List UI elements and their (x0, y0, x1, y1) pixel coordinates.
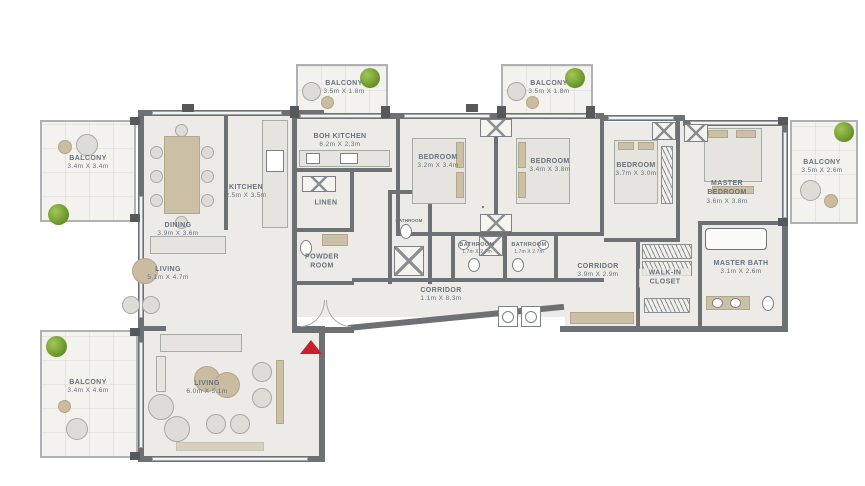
partition (297, 168, 392, 172)
room-dims: 3.5m X 1.8m (528, 88, 569, 97)
dining-chair (252, 388, 272, 408)
plant-icon (46, 336, 67, 357)
window (152, 457, 308, 461)
window (139, 342, 143, 448)
ottoman (206, 414, 226, 434)
wall (292, 327, 354, 333)
column (130, 452, 140, 460)
window (502, 114, 596, 118)
room-name: BATHROOM (459, 242, 494, 249)
linen-shelf (302, 176, 336, 192)
partition (297, 281, 354, 285)
ac-unit (652, 122, 676, 140)
dryer-drum (525, 311, 537, 323)
room-dims: 6.2m X 2.3m (313, 141, 366, 150)
bathtub (705, 228, 767, 250)
room-dims: 5.1m X 4.7m (147, 274, 188, 283)
entrance-arrow-icon (300, 340, 322, 354)
window (404, 114, 490, 118)
boh-sink (306, 153, 320, 164)
partition (350, 168, 354, 232)
room-label-kitchen: KITCHEN 2.5m X 3.5m (225, 183, 266, 201)
room-name: KITCHEN (225, 183, 266, 192)
room-dims: 1.7m X 2.7m (511, 249, 546, 256)
room-name: BEDROOM (615, 161, 656, 170)
room-dims: 3.4m X 4.6m (67, 387, 108, 396)
room-label-living-lower: LIVING 6.0m X 5.1m (186, 379, 227, 397)
column (586, 106, 595, 118)
room-dims: 3.6m X 3.8m (694, 198, 760, 207)
balcony-table (824, 194, 838, 208)
balcony-table (321, 96, 334, 109)
sink (712, 298, 723, 308)
tv-console (276, 360, 284, 424)
pillow (736, 130, 756, 138)
dining-chair (150, 170, 163, 183)
room-label-linen: LINEN (315, 198, 338, 207)
room-name: CORRIDOR (577, 262, 618, 271)
shaft (482, 206, 484, 208)
ottoman (142, 296, 160, 314)
room-dims: 1.1m X 8.3m (420, 295, 461, 304)
room-dims: 3.4m X 3.4m (67, 163, 108, 172)
washer-drum (502, 311, 514, 323)
room-label-balcony-top-2: BALCONY 3.5m X 1.8m (528, 79, 569, 97)
dining-table (164, 136, 200, 214)
balcony-chair (800, 180, 821, 201)
balcony-chair (66, 418, 88, 440)
lounge-chair (148, 394, 174, 420)
wall (560, 326, 788, 332)
pillow (456, 172, 464, 198)
room-label-bedroom-2: BEDROOM 3.4m X 3.8m (529, 157, 570, 175)
balcony-chair (302, 82, 321, 101)
kitchen-counter (262, 120, 288, 228)
room-label-boh-kitchen: BOH KITCHEN 6.2m X 2.3m (313, 132, 366, 150)
room-dims: 3.2m X 3.4m (417, 162, 458, 171)
room-label-corridor-2: CORRIDOR 3.9m X 2.9m (577, 262, 618, 280)
ac-unit (480, 119, 512, 137)
column (778, 218, 788, 226)
column (130, 117, 140, 125)
partition (388, 190, 392, 284)
balcony-table (58, 400, 71, 413)
partition (676, 120, 680, 242)
room-label-master-bath: MASTER BATH 3.1m X 2.6m (714, 259, 769, 277)
room-name: BEDROOM (417, 153, 458, 162)
closet-shelf (642, 244, 692, 259)
column (381, 106, 390, 118)
wall (138, 326, 166, 331)
room-dims: 3.9m X 2.9m (577, 271, 618, 280)
pillow (708, 130, 728, 138)
lounge-chair (164, 416, 190, 442)
partition (224, 116, 228, 230)
dining-chair (150, 146, 163, 159)
room-dims: 3.5m X 1.8m (323, 88, 364, 97)
pillow (638, 142, 654, 150)
wardrobe (661, 146, 673, 204)
column (130, 214, 140, 222)
room-label-bedroom-1: BEDROOM 3.2m X 3.4m (417, 153, 458, 171)
sink (730, 298, 741, 308)
toilet (512, 258, 524, 272)
room-name: LINEN (315, 198, 338, 207)
corridor-bench (570, 312, 634, 324)
shaft (394, 246, 424, 276)
partition (352, 278, 604, 282)
dining-chair (175, 124, 188, 137)
pillow (518, 142, 526, 168)
room-dims: 1.7m X 2.7m (459, 249, 494, 256)
room-label-corridor-1: CORRIDOR 1.1m X 8.3m (420, 286, 461, 304)
sofa (160, 334, 242, 352)
dining-chair (201, 194, 214, 207)
room-label-bedroom-3: BEDROOM 3.7m X 3.0m (615, 161, 656, 179)
column (182, 104, 194, 112)
window (300, 114, 384, 118)
room-name: BALCONY (801, 158, 842, 167)
partition (494, 232, 604, 236)
room-name: DINING (157, 221, 198, 230)
column (130, 328, 140, 336)
room-name: BALCONY (67, 378, 108, 387)
room-label-balcony-top-1: BALCONY 3.5m X 1.8m (323, 79, 364, 97)
room-name: MASTER BATH (714, 259, 769, 268)
balcony-table (526, 96, 539, 109)
room-label-bathroom-1: BATHROOM 1.7m X 2.7m (459, 242, 494, 256)
room-label-master-bedroom: MASTER BEDROOM 3.6m X 3.8m (694, 179, 760, 207)
room-label-balcony-bottom-left: BALCONY 3.4m X 4.6m (67, 378, 108, 396)
column (466, 104, 478, 112)
dining-chair (201, 146, 214, 159)
room-dims: 6.0m X 5.1m (186, 388, 227, 397)
balcony-table (58, 140, 72, 154)
room-name: BALCONY (323, 79, 364, 88)
room-name: BEDROOM (529, 157, 570, 166)
room-dims: 3.5m X 2.6m (801, 167, 842, 176)
partition (297, 228, 354, 232)
rug (176, 442, 264, 451)
pillow (518, 172, 526, 198)
partition (503, 232, 507, 282)
entry-door-swing (300, 300, 325, 327)
closet-shelf (644, 298, 690, 313)
partition (698, 221, 702, 330)
ac-unit (480, 214, 512, 232)
room-name: CORRIDOR (420, 286, 461, 295)
entry-door-swing (326, 300, 351, 327)
pillow (618, 142, 634, 150)
room-name: BALCONY (67, 154, 108, 163)
ottoman (230, 414, 250, 434)
room-dims: 3.7m X 3.0m (615, 170, 656, 179)
window (783, 132, 787, 218)
partition (428, 190, 432, 284)
dining-chair (252, 362, 272, 382)
room-label-living-upper: LIVING 5.1m X 4.7m (147, 265, 188, 283)
balcony-chair (76, 134, 98, 156)
toilet (468, 258, 480, 272)
room-name: BATHROOM (511, 242, 546, 249)
column (778, 117, 788, 125)
window (608, 116, 674, 120)
room-name: MASTER BEDROOM (694, 179, 760, 198)
room-label-powder-room: POWDER ROOM (298, 253, 346, 272)
plant-icon (834, 122, 854, 142)
room-dims: 3.9m X 3.6m (157, 230, 198, 239)
column (290, 106, 299, 118)
ottoman (122, 296, 140, 314)
dining-chair (150, 194, 163, 207)
room-dims: 2.5m X 3.5m (225, 192, 266, 201)
room-label-dining: DINING 3.9m X 3.6m (157, 221, 198, 239)
room-name: BATHROOM (396, 218, 423, 224)
boh-stove (340, 153, 358, 164)
room-name: WALK-IN CLOSET (639, 269, 691, 288)
room-name: BOH KITCHEN (313, 132, 366, 141)
plant-icon (48, 204, 69, 225)
column (497, 106, 506, 118)
floor-plan: BALCONY 3.4m X 3.4m DINING 3.9m X 3.6m K… (0, 0, 865, 486)
room-name: LIVING (147, 265, 188, 274)
window (152, 111, 282, 115)
kitchen-sink (266, 150, 284, 172)
partition (554, 232, 558, 282)
room-name: BALCONY (528, 79, 569, 88)
room-label-balcony-right: BALCONY 3.5m X 2.6m (801, 158, 842, 176)
wall (292, 110, 297, 332)
room-label-bathroom-2: BATHROOM 1.7m X 2.7m (511, 242, 546, 256)
partition (600, 116, 604, 236)
room-label-balcony-top-left: BALCONY 3.4m X 3.4m (67, 154, 108, 172)
room-dims: 3.1m X 2.6m (714, 268, 769, 277)
toilet (400, 224, 412, 239)
balcony-chair (507, 82, 526, 101)
desk (156, 356, 166, 392)
dining-chair (201, 170, 214, 183)
partition (604, 238, 680, 242)
room-dims: 3.4m X 3.8m (529, 166, 570, 175)
partition (698, 221, 788, 225)
partition (451, 232, 455, 282)
room-name: LIVING (186, 379, 227, 388)
room-name: POWDER ROOM (298, 253, 346, 272)
room-label-bathroom-small: BATHROOM (396, 218, 423, 224)
ac-unit (684, 124, 708, 142)
toilet (762, 296, 774, 311)
room-label-walk-in-closet: WALK-IN CLOSET (639, 269, 691, 288)
powder-vanity (322, 234, 348, 246)
